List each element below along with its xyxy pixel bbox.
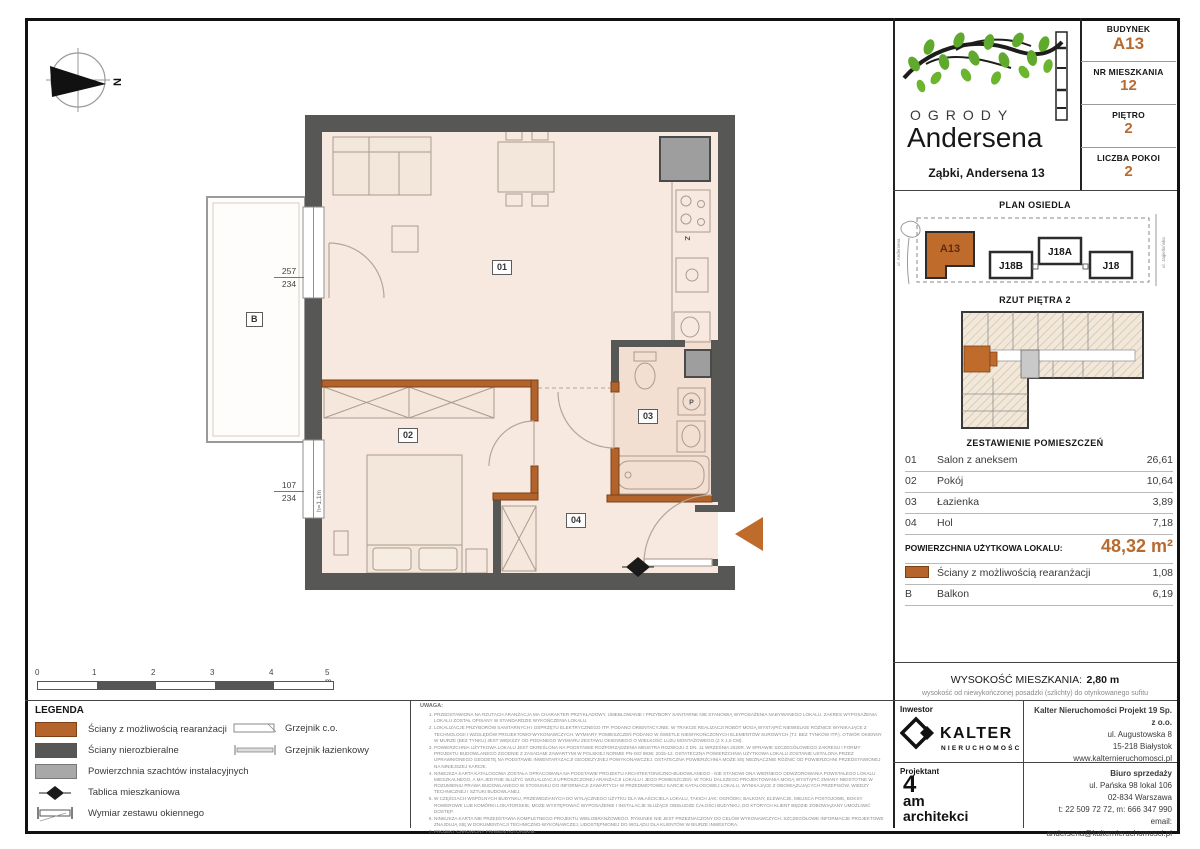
compass-north-label: N: [112, 78, 124, 86]
compass-icon: [46, 48, 110, 112]
building-j18-label: J18: [1103, 261, 1120, 272]
info-value: 12: [1081, 77, 1176, 94]
building-a13: [926, 232, 974, 278]
kalter-logo: KALTER NIERUCHOMOŚCI: [900, 716, 1020, 763]
building-j18a-label: J18A: [1048, 247, 1072, 258]
room-name: Salon z aneksem: [937, 454, 1018, 466]
note-item: PROJEKT CHRONIONY PRAWEM AUTORSKIM.: [434, 829, 886, 835]
hq-name: Kalter Nieruchomości Projekt 19 Sp. z o.…: [1030, 705, 1172, 729]
kalter-logo-icon: KALTER NIERUCHOMOŚCI: [900, 716, 1020, 758]
legend-tablica-icon: [38, 786, 72, 800]
notes-block: UWAGA: PRZEDSTAWIONA NA RZUTACH ARANŻACJ…: [420, 703, 886, 837]
building-j18b-label: J18B: [999, 261, 1023, 272]
divider: [1023, 700, 1024, 828]
room-no: B: [905, 588, 931, 600]
room-label-lazienka: 03: [638, 409, 658, 424]
site-plan-title: PLAN OSIEDLA: [893, 200, 1177, 210]
legend-label: Wymiar zestawu okiennego: [88, 808, 204, 819]
scale-tick-label: 4: [269, 668, 273, 677]
room-no: 03: [905, 496, 931, 508]
table-row: 03 Łazienka 3,89: [905, 492, 1173, 514]
window-dimension-upper: 257234: [272, 266, 306, 289]
info-label: BUDYNEK: [1081, 18, 1176, 34]
rooms-table-title: ZESTAWIENIE POMIESZCZEŃ: [893, 438, 1177, 448]
window-height-note: h=1,1m: [316, 490, 323, 512]
info-value: 2: [1081, 163, 1176, 180]
street-label-left: ul. Andersena: [896, 238, 901, 266]
sales-title: Biuro sprzedaży: [1030, 768, 1172, 780]
info-label: NR MIESZKANIA: [1081, 61, 1176, 77]
designer-logo-line: 4: [903, 776, 968, 794]
note-item: W CZĘŚCIACH WSPÓLNYCH BUDYNKU, PRZEWIDZI…: [434, 796, 886, 815]
logo-word-andersena: Andersena: [907, 122, 1043, 153]
legend-window-icon: [36, 805, 74, 823]
divider: [410, 700, 411, 828]
washer-label: P: [689, 400, 694, 407]
legend-label: Grzejnik łazienkowy: [285, 745, 369, 756]
street-label-right: ul. Jagiellońska: [1161, 237, 1166, 268]
legend-radiator-bathroom-icon: [233, 744, 277, 756]
room-area: 10,64: [1147, 475, 1173, 487]
height-note: wysokość od niewykończonej posadzki (szl…: [893, 690, 1177, 697]
designer-logo-line: architekci: [903, 809, 968, 824]
room-no: 01: [905, 454, 931, 466]
total-area-value: 48,32 m²: [1101, 536, 1173, 557]
floor-overview-title: RZUT PIĘTRA 2: [893, 295, 1177, 305]
height-label: WYSOKOŚĆ MIESZKANIA:: [951, 674, 1082, 686]
table-row-walls: Ściany z możliwością rearanżacji 1,08: [905, 563, 1173, 585]
notes-title: UWAGA:: [420, 703, 886, 709]
shaft-kitchen: [660, 137, 710, 181]
sales-office: Biuro sprzedaży ul. Pańska 98 lokal 106 …: [1030, 768, 1172, 840]
room-area: 26,61: [1147, 454, 1173, 466]
note-item: LOKALIZACJE PRZYBORÓW SANITARNYCH I OSPR…: [434, 725, 886, 744]
entrance-arrow-icon: [735, 517, 763, 551]
room-no: 04: [905, 517, 931, 529]
table-row: 01 Salon z aneksem 26,61: [905, 450, 1173, 472]
legend-swatch-dark: [35, 743, 77, 758]
scale-bar: 0 1 2 3 4 5 m: [35, 668, 335, 694]
shaft-bathroom: [685, 350, 711, 377]
height-value: 2,80 m: [1087, 674, 1120, 686]
legend-label: Grzejnik c.o.: [285, 723, 338, 734]
legend-label: Powierzchnia szachtów instalacyjnych: [88, 766, 249, 777]
hq-line: www.kalternieruchomosci.pl: [1030, 753, 1172, 765]
info-value: A13: [1081, 34, 1176, 54]
legend-title: LEGENDA: [35, 705, 84, 716]
height-info: WYSOKOŚĆ MIESZKANIA: 2,80 m wysokość od …: [893, 670, 1177, 697]
note-item: PRZEDSTAWIONA NA RZUTACH ARANŻACJA MA CH…: [434, 712, 886, 724]
room-no: 02: [905, 475, 931, 487]
legend-label: Ściany nierozbieralne: [88, 745, 179, 756]
hq-line: ul. Augustowska 8: [1030, 729, 1172, 741]
sales-line: email: andersena@kalternieruchomosci.pl: [1030, 816, 1172, 840]
info-pietro: PIĘTRO 2: [1081, 104, 1176, 147]
total-area-label: POWIERZCHNIA UŻYTKOWA LOKALU:: [905, 543, 1063, 553]
designer-logo-line: am: [903, 794, 968, 809]
kalter-subtitle: NIERUCHOMOŚCI: [941, 743, 1020, 752]
building-a13-label: A13: [940, 243, 960, 255]
room-label-hol: 04: [566, 513, 586, 528]
scale-tick-label: 3: [210, 668, 214, 677]
room-label-pokoj: 02: [398, 428, 418, 443]
window-dimension-lower: 107234: [272, 480, 306, 503]
balcony-label: B: [246, 312, 263, 327]
kalter-wordmark: KALTER: [940, 725, 1013, 742]
room-name: Hol: [937, 517, 953, 529]
room-name: Łazienka: [937, 496, 979, 508]
note-item: NINIEJSZA KARTA NIE PRZEDSTAWIA KOMPLETN…: [434, 816, 886, 828]
logo-word-ogrody: OGRODY: [910, 107, 1014, 123]
info-nr-mieszkania: NR MIESZKANIA 12: [1081, 61, 1176, 104]
room-area: 1,08: [1153, 567, 1173, 579]
hq-line: 15-218 Białystok: [1030, 741, 1172, 753]
legend-radiator-co-icon: [233, 722, 277, 734]
info-label: PIĘTRO: [1081, 104, 1176, 120]
divider: [893, 662, 1177, 663]
scale-tick-label: 0: [35, 668, 39, 677]
catalog-sheet: P: [0, 0, 1200, 849]
room-area: 3,89: [1153, 496, 1173, 508]
sales-line: t: 22 509 72 72, m: 666 347 990: [1030, 804, 1172, 816]
note-item: POWIERZCHNIA UŻYTKOWA LOKALU JEST OKREŚL…: [434, 745, 886, 770]
sales-line: 02-834 Warszawa: [1030, 792, 1172, 804]
divider: [893, 190, 1177, 191]
scale-tick-label: 1: [92, 668, 96, 677]
room-name: Pokój: [937, 475, 963, 487]
table-row: 04 Hol 7,18: [905, 513, 1173, 535]
room-name: Balkon: [937, 588, 969, 600]
info-budynek: BUDYNEK A13: [1081, 18, 1176, 61]
divider: [25, 700, 1177, 701]
ogrody-andersena-logo-icon: OGRODY Andersena: [896, 20, 1079, 155]
floor-overview-map: [893, 306, 1177, 434]
table-row: 02 Pokój 10,64: [905, 471, 1173, 493]
table-row-balcony: B Balkon 6,19: [905, 584, 1173, 606]
legend-swatch-orange: [35, 722, 77, 737]
orange-wall-swatch: [905, 566, 929, 578]
info-value: 2: [1081, 120, 1176, 137]
room-area: 6,19: [1153, 588, 1173, 600]
room-name: Ściany z możliwością rearanżacji: [937, 567, 1090, 579]
furniture-hall: [502, 506, 536, 571]
scale-tick-label: 2: [151, 668, 155, 677]
sales-line: ul. Pańska 98 lokal 106: [1030, 780, 1172, 792]
info-label: LICZBA POKOI: [1081, 147, 1176, 163]
designer-logo: 4 am architekci: [903, 776, 968, 824]
total-area-row: POWIERZCHNIA UŻYTKOWA LOKALU: 48,32 m²: [905, 534, 1173, 564]
hq-address: Kalter Nieruchomości Projekt 19 Sp. z o.…: [1030, 705, 1172, 765]
legend-label: Tablica mieszkaniowa: [88, 787, 180, 798]
note-item: NINIEJSZA KARTA KATALOGOWA ZOSTAŁA OPRAC…: [434, 771, 886, 796]
room-area: 7,18: [1153, 517, 1173, 529]
investor-label: Inwestor: [900, 705, 933, 714]
legend-label: Ściany z możliwością rearanżacji: [88, 724, 227, 735]
site-plan-map: A13 J18B J18A J18 ul. Andersena ul. Jagi…: [893, 210, 1177, 290]
legend-swatch-gray: [35, 764, 77, 779]
kitchen-sink-label: Z: [683, 236, 692, 241]
room-label-salon: 01: [492, 260, 512, 275]
location-bar: Ząbki, Andersena 13: [893, 155, 1080, 190]
info-liczba-pokoi: LICZBA POKOI 2: [1081, 147, 1176, 190]
logo-box: OGRODY Andersena: [896, 20, 1079, 155]
